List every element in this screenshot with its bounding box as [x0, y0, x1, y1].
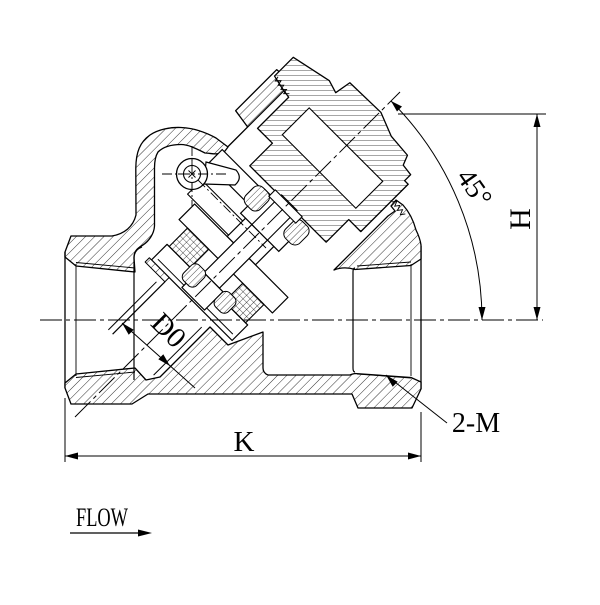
svg-text:FLOW: FLOW: [76, 503, 128, 532]
svg-text:2-M: 2-M: [452, 408, 500, 439]
svg-text:H: H: [504, 208, 537, 230]
svg-text:K: K: [234, 426, 255, 458]
